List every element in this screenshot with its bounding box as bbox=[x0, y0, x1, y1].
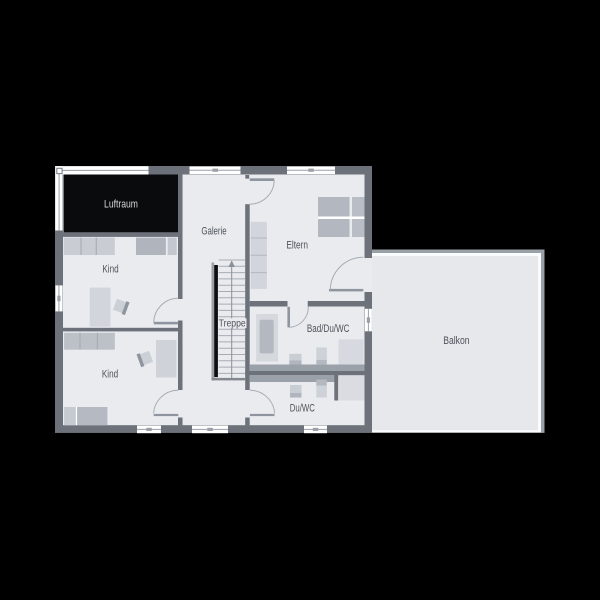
svg-text:Kind: Kind bbox=[102, 263, 118, 275]
svg-text:Treppe: Treppe bbox=[219, 318, 247, 329]
svg-text:Luftraum: Luftraum bbox=[104, 198, 138, 210]
svg-text:Galerie: Galerie bbox=[201, 226, 226, 238]
svg-text:Du/WC: Du/WC bbox=[290, 403, 315, 415]
svg-text:Balkon: Balkon bbox=[443, 335, 469, 347]
svg-text:Kind: Kind bbox=[102, 369, 118, 381]
svg-text:Eltern: Eltern bbox=[286, 240, 308, 252]
svg-text:Bad/Du/WC: Bad/Du/WC bbox=[307, 323, 350, 335]
